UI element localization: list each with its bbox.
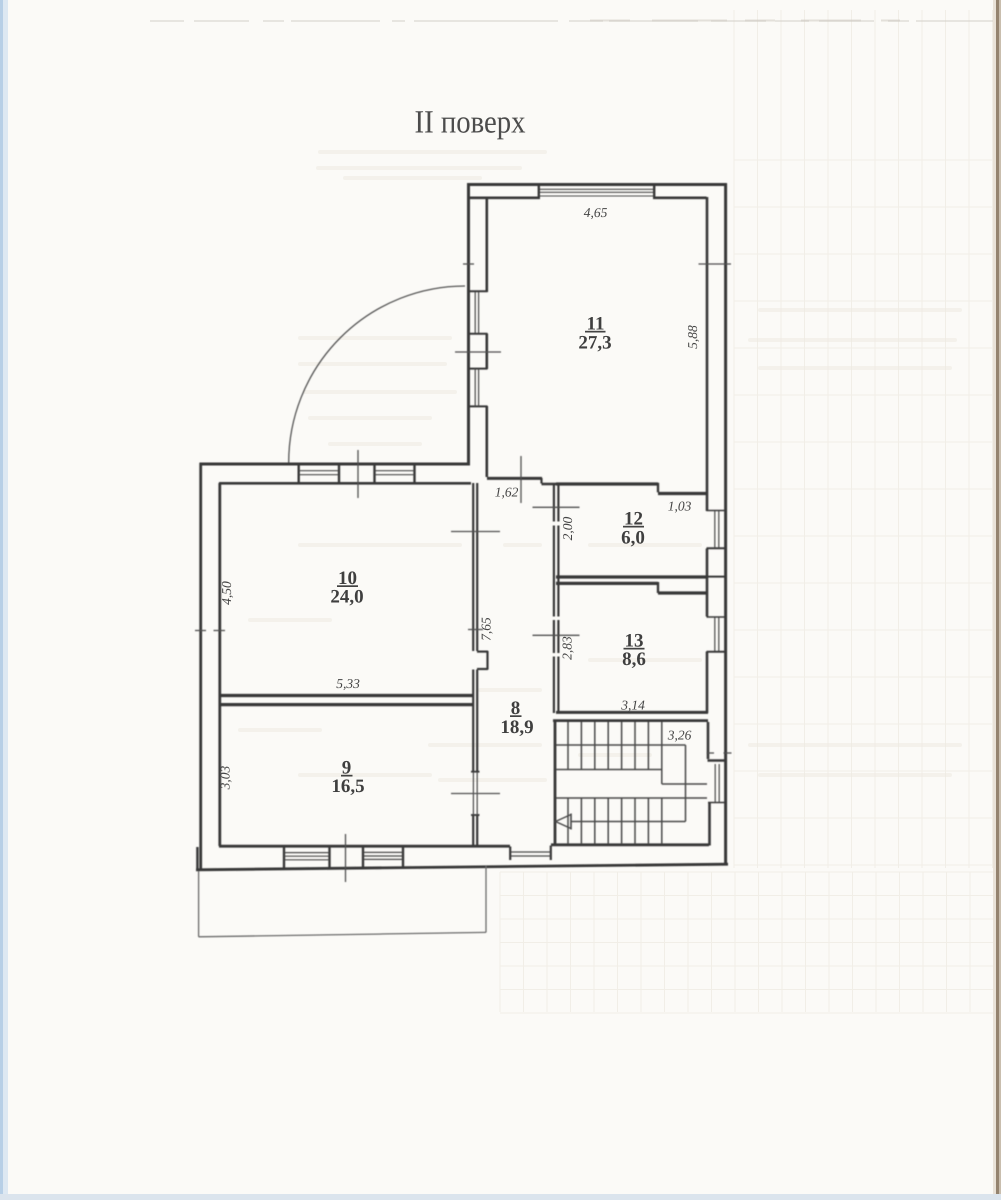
svg-text:16,5: 16,5 bbox=[331, 776, 364, 797]
svg-text:5,33: 5,33 bbox=[336, 676, 360, 691]
svg-text:2,83: 2,83 bbox=[560, 636, 575, 660]
svg-text:8,6: 8,6 bbox=[622, 649, 646, 670]
svg-text:18,9: 18,9 bbox=[500, 717, 533, 738]
svg-text:3,14: 3,14 bbox=[620, 698, 645, 713]
svg-text:5,88: 5,88 bbox=[685, 325, 700, 349]
svg-text:6,0: 6,0 bbox=[621, 528, 645, 549]
svg-text:ІІ поверх: ІІ поверх bbox=[415, 105, 526, 141]
svg-text:3,03: 3,03 bbox=[218, 765, 233, 790]
svg-text:3,26: 3,26 bbox=[667, 728, 692, 743]
svg-text:24,0: 24,0 bbox=[330, 587, 363, 608]
svg-text:7,65: 7,65 bbox=[479, 617, 494, 641]
svg-text:27,3: 27,3 bbox=[578, 333, 611, 354]
svg-text:1,62: 1,62 bbox=[495, 485, 519, 500]
svg-text:2,00: 2,00 bbox=[560, 516, 575, 540]
svg-text:4,50: 4,50 bbox=[219, 581, 234, 605]
svg-text:1,03: 1,03 bbox=[668, 499, 692, 514]
svg-text:4,65: 4,65 bbox=[584, 205, 608, 220]
